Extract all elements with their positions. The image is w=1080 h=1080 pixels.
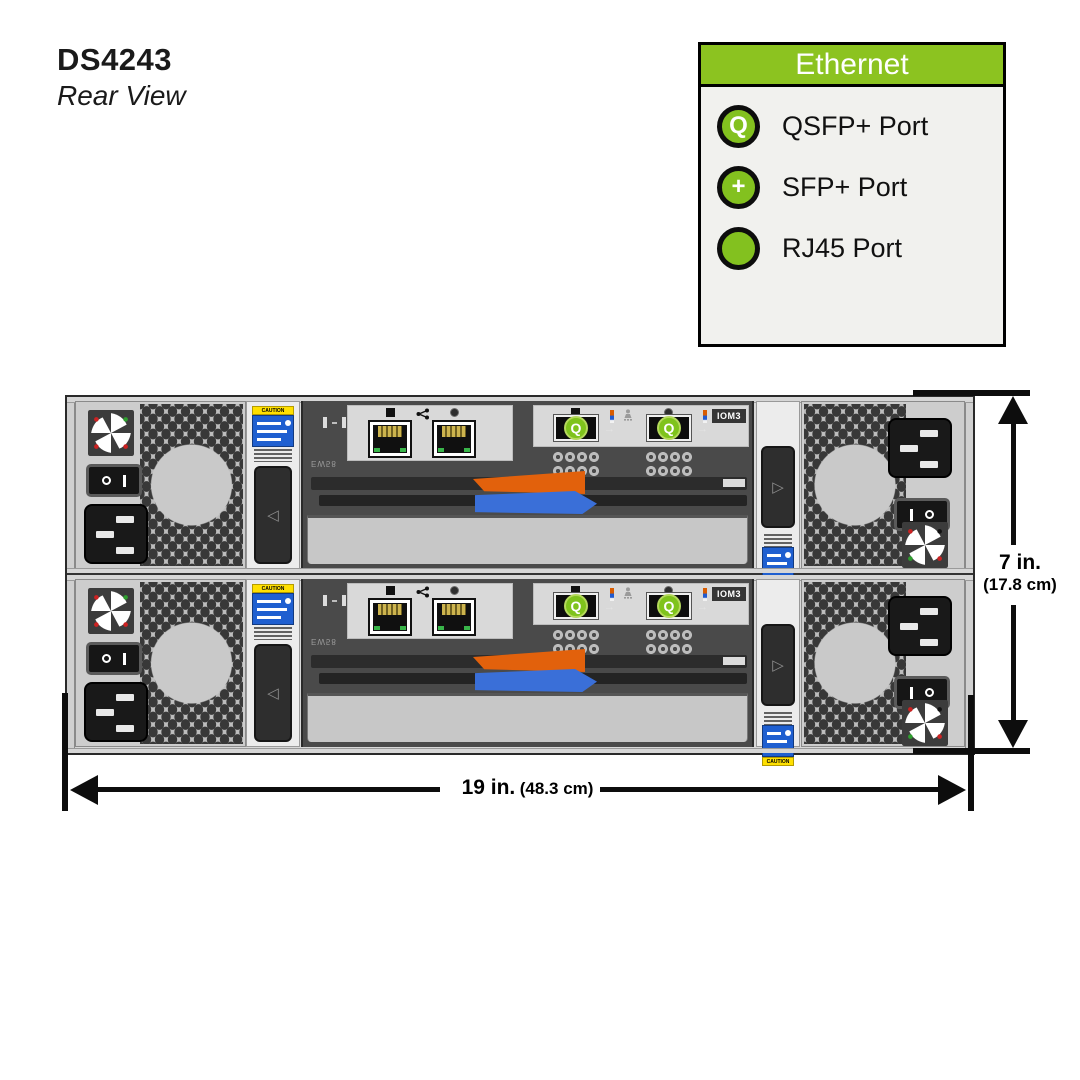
service-person-icon: [622, 408, 634, 426]
diagram-canvas: DS4243 Rear View Ethernet Q QSFP+ Port +…: [0, 0, 1080, 1080]
blue-release-handle: [475, 491, 597, 514]
iom-model-tag: IOM3: [712, 587, 746, 601]
iom-latch-strip-right: ▷ CAUTION: [756, 401, 800, 569]
led-indicator-marks: [323, 417, 346, 428]
circle-port-id-icon: [450, 408, 459, 417]
legend-item-sfp: + SFP+ Port: [717, 165, 1003, 209]
height-dim-line-top: [1011, 418, 1016, 545]
switch-off-symbol: [925, 510, 934, 519]
module-handle-right: ▷: [761, 446, 795, 528]
title-block: DS4243 Rear View: [57, 42, 186, 112]
qsfp-port-2: Q: [647, 593, 691, 619]
legend-header: Ethernet: [701, 45, 1003, 87]
height-dim-line-bottom: [1011, 605, 1016, 725]
status-led-grid: [645, 628, 693, 656]
fan-blades-icon: [88, 410, 134, 456]
width-dimension-label: 19 in. (48.3 cm): [445, 776, 610, 800]
iom-latch-strip-left: CAUTION ◁: [246, 401, 300, 569]
iom-latch-strip-right: ▷ CAUTION: [756, 579, 800, 747]
caution-label: CAUTION: [252, 584, 294, 640]
power-switch: [86, 642, 142, 675]
cabling-diagram-label: [252, 593, 294, 625]
iom-latch-strip-left: CAUTION ◁: [246, 579, 300, 747]
legend-label: SFP+ Port: [782, 172, 907, 203]
legend-label: RJ45 Port: [782, 233, 902, 264]
rj45-port-2: [432, 420, 476, 458]
management-port-panel: [347, 583, 513, 639]
iom-module: Q → Q → IOM3 EW58: [301, 579, 754, 747]
shelf-row-top: CAUTION ◁: [67, 397, 973, 575]
power-supply-left: [75, 401, 246, 569]
label-fine-print: [254, 449, 292, 462]
port-arrow-icon: →: [697, 424, 708, 435]
qsfp-port-marker-icon: Q: [657, 416, 681, 440]
width-dim-arrow-left-icon: [70, 775, 98, 805]
label-fine-print: [764, 712, 792, 725]
caution-label: CAUTION: [252, 406, 294, 462]
attention-mark-icon: [703, 588, 707, 601]
power-supply-right: [801, 579, 965, 747]
power-supply-right: [801, 401, 965, 569]
network-share-icon: [416, 407, 430, 425]
iom-lower-body: [307, 693, 748, 742]
view-subtitle: Rear View: [57, 80, 186, 112]
legend-item-qsfp: Q QSFP+ Port: [717, 104, 1003, 148]
module-handle-left: ◁: [254, 644, 292, 742]
width-value-in: 19 in.: [462, 776, 516, 799]
rj45-port-icon: [717, 227, 760, 270]
caution-label: CAUTION: [762, 710, 794, 766]
service-person-icon: [622, 586, 634, 604]
width-dim-cap-right: [968, 695, 974, 811]
iom-model-tag: IOM3: [712, 409, 746, 423]
port-arrow-icon: →: [604, 424, 615, 435]
power-inlet: [84, 682, 148, 742]
caution-banner: CAUTION: [762, 757, 794, 766]
status-led-grid: [645, 450, 693, 478]
qsfp-port-1: Q: [554, 415, 598, 441]
ethernet-legend: Ethernet Q QSFP+ Port + SFP+ Port RJ45 P…: [698, 42, 1006, 347]
attention-mark-icon: [703, 410, 707, 423]
sfp-port-icon: +: [717, 166, 760, 209]
power-inlet: [888, 596, 952, 656]
handle-arrow-right-icon: ▷: [772, 480, 784, 495]
blue-release-handle: [475, 669, 597, 692]
height-value-in: 7 in.: [965, 551, 1075, 575]
label-fine-print: [254, 627, 292, 640]
model-title: DS4243: [57, 42, 186, 78]
switch-on-symbol: [910, 687, 913, 699]
handle-arrow-left-icon: ◁: [267, 508, 279, 523]
switch-off-symbol: [102, 476, 111, 485]
fan-blades-icon: [902, 522, 948, 568]
circle-port-id-icon: [450, 586, 459, 595]
width-value-cm: (48.3 cm): [520, 779, 594, 798]
switch-off-symbol: [925, 688, 934, 697]
square-port-id-icon: [386, 586, 395, 595]
handle-arrow-left-icon: ◁: [267, 686, 279, 701]
rj45-port-2: [432, 598, 476, 636]
board-code-text: EW58: [311, 637, 337, 646]
attention-mark-icon: [610, 410, 614, 423]
cabling-diagram-label: [762, 725, 794, 757]
fan-blades-icon: [88, 588, 134, 634]
label-fine-print: [764, 534, 792, 547]
module-handle-right: ▷: [761, 624, 795, 706]
rj45-port-1: [368, 420, 412, 458]
orange-release-tab: [473, 649, 585, 672]
led-indicator-marks: [323, 595, 346, 606]
shelf-row-bottom: CAUTION ◁: [67, 575, 973, 753]
switch-on-symbol: [123, 653, 126, 665]
power-switch: [86, 464, 142, 497]
switch-on-symbol: [123, 475, 126, 487]
legend-label: QSFP+ Port: [782, 111, 928, 142]
module-handle-left: ◁: [254, 466, 292, 564]
height-dim-arrow-up-icon: [998, 396, 1028, 424]
fan-grille: [140, 582, 243, 744]
width-dim-line-right: [600, 787, 942, 792]
fan-blades-icon: [902, 700, 948, 746]
switch-on-symbol: [910, 509, 913, 521]
attention-mark-icon: [610, 588, 614, 601]
switch-off-symbol: [102, 654, 111, 663]
height-dimension-label: 7 in. (17.8 cm): [965, 551, 1075, 595]
handle-arrow-right-icon: ▷: [772, 658, 784, 673]
qsfp-port-icon: Q: [717, 105, 760, 148]
rj45-port-1: [368, 598, 412, 636]
cabling-diagram-label: [252, 415, 294, 447]
network-share-icon: [416, 585, 430, 603]
qsfp-port-marker-icon: Q: [564, 416, 588, 440]
port-arrow-icon: →: [697, 602, 708, 613]
height-value-cm: (17.8 cm): [965, 575, 1075, 595]
fan-grille: [140, 404, 243, 566]
iom-module: Q → Q → IOM3 EW58: [301, 401, 754, 569]
legend-item-rj45: RJ45 Port: [717, 226, 1003, 270]
qsfp-port-2: Q: [647, 415, 691, 441]
orange-release-tab: [473, 471, 585, 494]
power-inlet: [84, 504, 148, 564]
width-dim-cap-left: [62, 693, 68, 811]
port-arrow-icon: →: [604, 602, 615, 613]
power-supply-left: [75, 579, 246, 747]
width-dim-arrow-right-icon: [938, 775, 966, 805]
square-port-id-icon: [386, 408, 395, 417]
ds4243-rear-enclosure: CAUTION ◁: [65, 395, 975, 755]
board-code-text: EW58: [311, 459, 337, 468]
width-dim-line-left: [95, 787, 440, 792]
qsfp-port-marker-icon: Q: [657, 594, 681, 618]
power-inlet: [888, 418, 952, 478]
iom-lower-body: [307, 515, 748, 564]
qsfp-port-1: Q: [554, 593, 598, 619]
caution-banner: CAUTION: [252, 406, 294, 415]
management-port-panel: [347, 405, 513, 461]
height-dim-arrow-down-icon: [998, 720, 1028, 748]
caution-banner: CAUTION: [252, 584, 294, 593]
qsfp-port-marker-icon: Q: [564, 594, 588, 618]
